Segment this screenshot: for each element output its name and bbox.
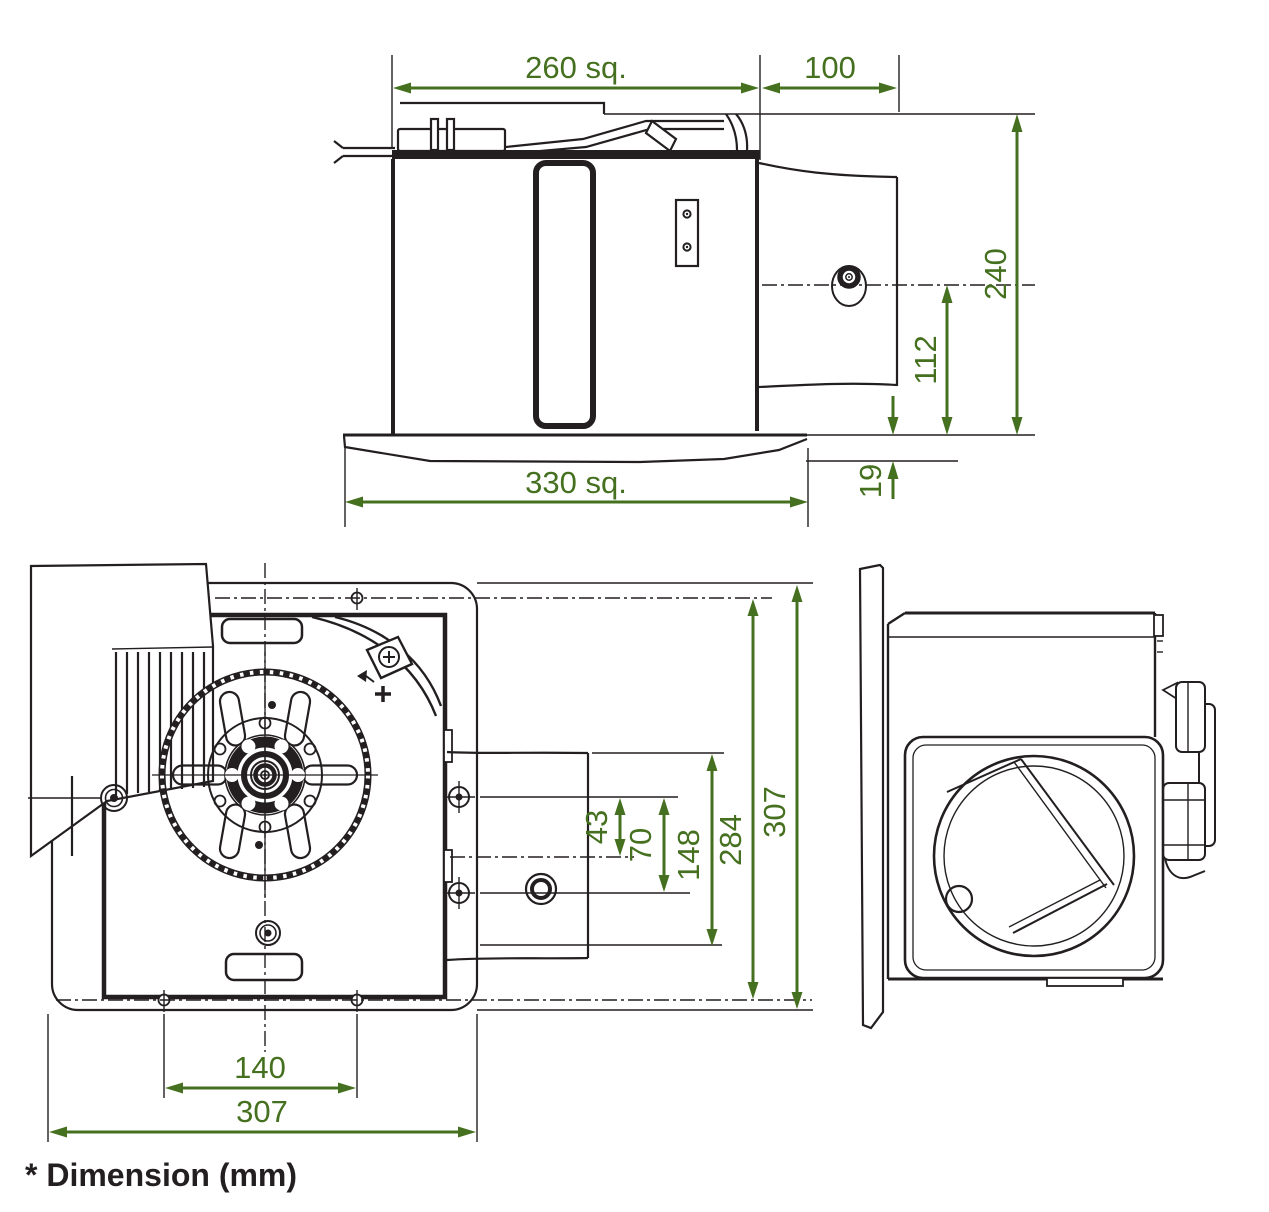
dimension-note: * Dimension (mm) (25, 1157, 297, 1193)
housing-screw-left (101, 785, 127, 811)
dim-148: 148 (671, 754, 718, 946)
bracket-foot (646, 121, 676, 151)
dim-label-43: 43 (579, 810, 614, 844)
dimension-drawing-page: 260 sq. 100 240 112 19 (0, 0, 1269, 1212)
dim-label-112: 112 (908, 335, 943, 384)
duct-top (759, 163, 897, 177)
mounting-rail (392, 150, 760, 159)
dim-240: 240 (978, 114, 1023, 435)
dim-label-70: 70 (623, 828, 658, 862)
dim-label-100: 100 (804, 50, 856, 85)
dim-label-148: 148 (671, 829, 706, 881)
dim-19: 19 (853, 396, 899, 499)
right-side-view (860, 565, 1215, 1028)
dim-100: 100 (762, 50, 897, 94)
dim-label-307-vertical: 307 (757, 786, 792, 838)
dim-330sq: 330 sq. (345, 465, 808, 508)
dim-label-330sq: 330 sq. (525, 465, 627, 500)
dim-70: 70 (623, 798, 670, 892)
bottom-tab (226, 954, 302, 980)
dim-284: 284 (713, 599, 759, 999)
dim-label-240: 240 (978, 248, 1013, 300)
dim-label-140: 140 (234, 1050, 286, 1085)
dim-43: 43 (579, 798, 626, 856)
bottom-notch (1047, 978, 1123, 986)
duct-clips (1163, 682, 1215, 878)
top-tab (222, 619, 302, 643)
dim-label-307-horizontal: 307 (236, 1094, 288, 1129)
fan-dimension-drawing: 260 sq. 100 240 112 19 (0, 0, 1269, 1212)
top-side-view: 260 sq. 100 240 112 19 (334, 50, 1035, 527)
dim-307-vertical: 307 (757, 585, 803, 1009)
dim-112: 112 (908, 285, 953, 435)
dim-label-260sq: 260 sq. (525, 50, 627, 85)
flange-outline (344, 436, 807, 462)
body-slot (536, 163, 593, 426)
dim-260sq: 260 sq. (393, 50, 759, 94)
housing-screw-bottom (256, 921, 280, 945)
dim-label-19: 19 (853, 464, 888, 498)
bottom-plan-view: 43 70 148 284 307 (28, 563, 813, 1142)
ceiling-flange-plate (860, 565, 883, 1028)
dim-307-horizontal: 307 (49, 1094, 476, 1138)
dim-label-284: 284 (713, 814, 748, 866)
dim-140: 140 (165, 1050, 356, 1094)
